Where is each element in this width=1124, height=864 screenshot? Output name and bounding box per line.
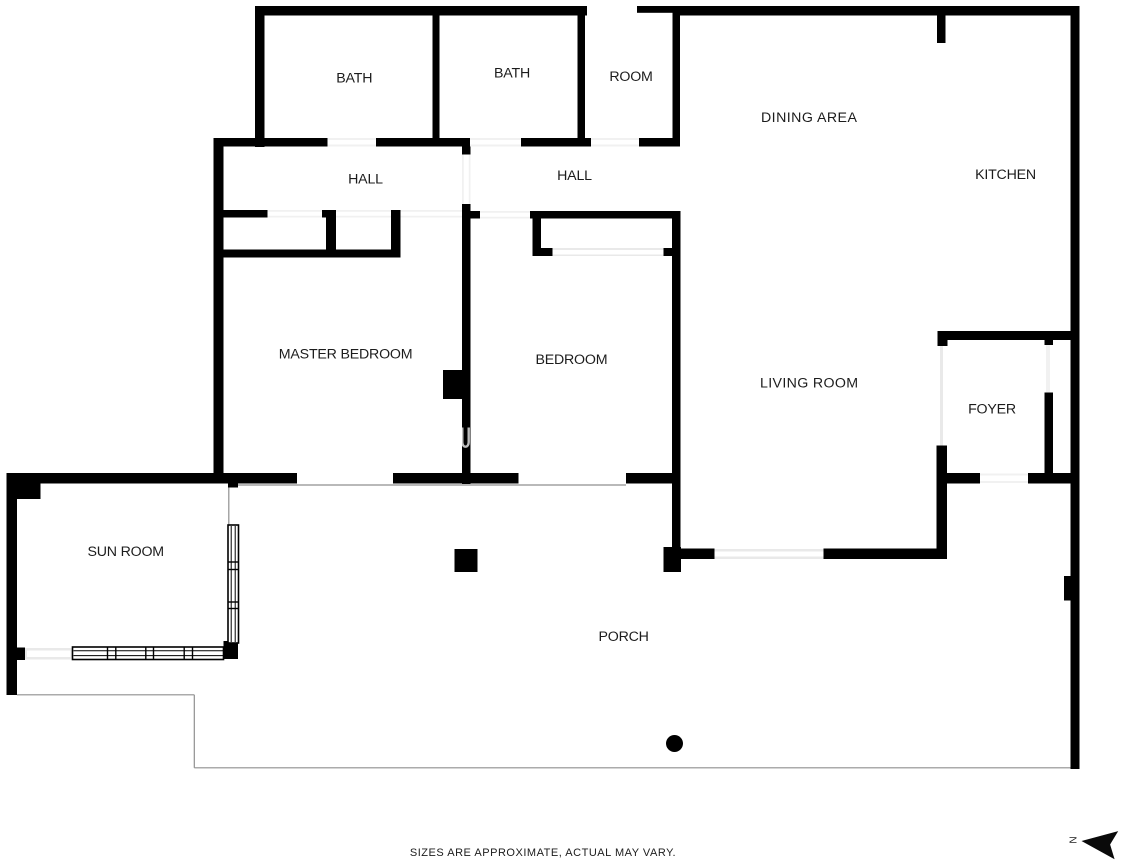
svg-text:HALL: HALL xyxy=(348,172,383,188)
svg-text:N: N xyxy=(1067,836,1078,843)
svg-text:BEDROOM: BEDROOM xyxy=(535,352,607,368)
svg-text:SUN ROOM: SUN ROOM xyxy=(87,544,163,560)
svg-text:BATH: BATH xyxy=(336,71,372,87)
svg-text:DINING AREA: DINING AREA xyxy=(761,110,857,126)
svg-text:SIZES ARE APPROXIMATE, ACTUAL: SIZES ARE APPROXIMATE, ACTUAL MAY VARY. xyxy=(410,847,676,859)
svg-text:LIVING ROOM: LIVING ROOM xyxy=(760,376,858,392)
svg-text:MASTER BEDROOM: MASTER BEDROOM xyxy=(279,346,413,362)
svg-text:HALL: HALL xyxy=(557,168,592,184)
svg-text:FOYER: FOYER xyxy=(968,401,1016,417)
svg-text:KITCHEN: KITCHEN xyxy=(975,167,1036,183)
svg-text:PORCH: PORCH xyxy=(598,629,648,645)
svg-text:BATH: BATH xyxy=(494,66,530,82)
svg-text:ROOM: ROOM xyxy=(609,69,652,85)
